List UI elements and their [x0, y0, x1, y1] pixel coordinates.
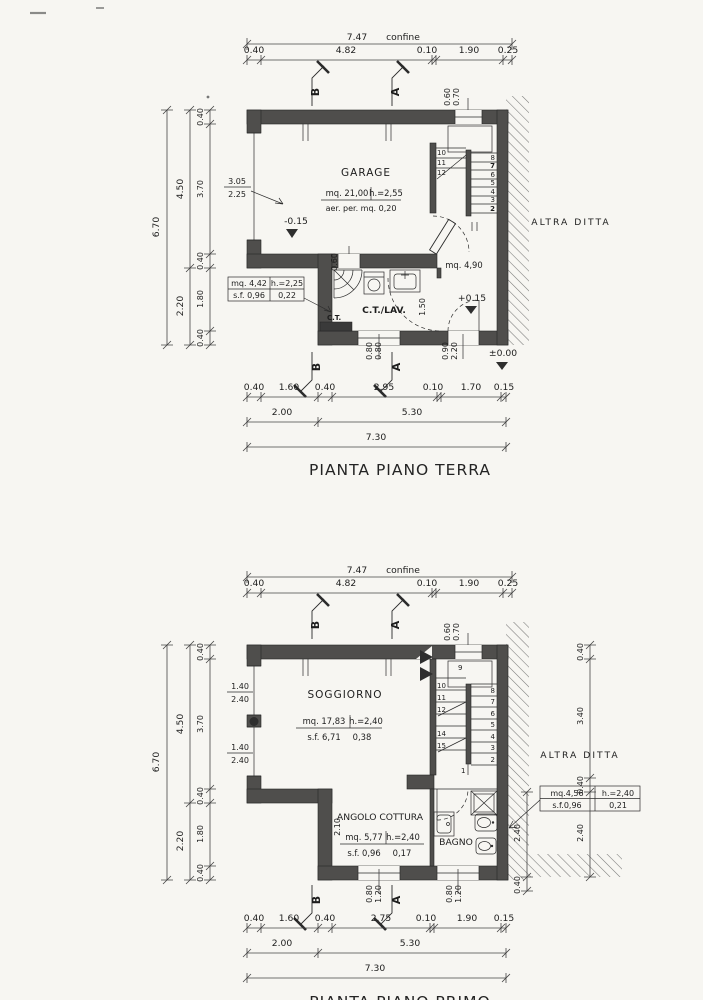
stair-step-number: 15	[437, 742, 446, 750]
stair-step-number: 5	[491, 179, 495, 187]
dim-label: 1.20	[374, 885, 383, 903]
dim-label: 0.60	[330, 253, 339, 271]
stair-step-number: 10	[437, 149, 446, 157]
stair-step-number: 6	[491, 710, 496, 718]
plan1-title: PIANTA PIANO TERRA	[309, 461, 491, 479]
stair-step-number: 4	[491, 188, 496, 196]
dim-label: 0.15	[494, 382, 515, 393]
height-value: h.=2,55	[369, 188, 403, 198]
stair-step-number: 5	[491, 721, 495, 729]
dim-label: 0.10	[423, 382, 444, 393]
dim-label: 0.90	[441, 342, 450, 360]
section-marker-b: B	[309, 88, 322, 96]
plan2-cottura-room: ANGOLO COTTURA mq. 5,77 h.=2,40 s.f. 0,9…	[333, 812, 424, 858]
dim-label: 2.20	[450, 342, 459, 360]
dim-label: 0.25	[498, 45, 519, 56]
stair-step-number: 9	[458, 664, 462, 672]
plan2-title-cutoff: PIANTA PIANO PRIMO	[309, 993, 490, 1000]
plan1-top-window-dims: 0.60 0.70	[443, 88, 468, 110]
dim-label: 3.70	[196, 715, 205, 733]
height-value: h.=2,40	[386, 832, 420, 842]
plan1-staircase: 10 11 12 8 7 6 5 4 3 2	[430, 126, 497, 254]
garage-door-leaf	[430, 219, 456, 254]
scanned-floor-plan-sheet: 7.47 confine 0.40 4.82 0.10 1.90 0.25 6.…	[0, 0, 703, 1000]
dim-label: 0.40	[196, 643, 205, 661]
shower-fixture	[471, 791, 497, 815]
stair-step-number: 7	[491, 698, 495, 706]
stair-step-number: 2	[490, 205, 495, 213]
dim-label: 7.30	[366, 432, 387, 443]
dim-label: 3.70	[196, 180, 205, 198]
dim-label: 2.40	[576, 824, 585, 842]
dim-label: 0.10	[417, 45, 438, 56]
area-value: mq. 4,42	[231, 279, 267, 288]
section-marker-b: B	[309, 621, 322, 629]
dim-label: confine	[386, 32, 420, 43]
sf-value: 0,21	[609, 801, 627, 810]
plan2-left-dimensions: 6.70 4.50 2.20 0.40 3.70 0.40 1.80 0.40	[151, 641, 216, 884]
ctlav-data-table: mq. 4,42 h.=2,25 s.f. 0,96 0,22	[228, 277, 331, 312]
column-dot	[250, 717, 259, 726]
dim-label: 1.50	[418, 298, 427, 316]
dim-label: 0.70	[452, 88, 461, 106]
toilet-fixture	[475, 814, 497, 831]
dim-label: 0.15	[494, 913, 515, 924]
level-label: -0.15	[284, 216, 308, 227]
washing-machine-fixture	[364, 272, 384, 294]
dim-label: 2.00	[272, 938, 293, 949]
neighbor-label: ALTRA DITTA	[540, 750, 619, 761]
dim-label: 6.70	[151, 217, 162, 238]
dim-label: 4.50	[175, 714, 186, 735]
stair-step-number: 14	[437, 730, 446, 738]
dim-label: 0.40	[315, 913, 336, 924]
dim-label: 0.40	[244, 578, 265, 589]
ct-equipment-block	[320, 322, 352, 331]
dim-label: 6.70	[151, 752, 162, 773]
room-label: GARAGE	[341, 167, 391, 179]
plan1-bottom-dimensions: 0.40 1.60 0.40 2.95 0.10 1.70 0.15 2.00 …	[243, 382, 514, 452]
dim-label: 0.40	[244, 45, 265, 56]
dim-label: 1.90	[459, 578, 480, 589]
dim-label: 1.70	[461, 382, 482, 393]
room-label: BAGNO	[439, 837, 473, 848]
dim-label: 2.10	[333, 818, 342, 836]
section-marker-b: B	[310, 363, 323, 371]
neighbor-hatch-area	[506, 96, 529, 345]
opening-dim: 2.25	[228, 190, 246, 199]
sf-value: s.f.0,96	[552, 801, 581, 810]
dim-label: 2.20	[175, 831, 186, 852]
dim-label: 4.50	[175, 179, 186, 200]
dim-label: 1.90	[459, 45, 480, 56]
sink-fixture	[390, 270, 420, 292]
floor-plan-drawing: 7.47 confine 0.40 4.82 0.10 1.90 0.25 6.…	[0, 0, 703, 1000]
plan2-bottom-dimensions: 0.40 1.60 0.40 2.75 0.10 1.90 0.15 2.00 …	[243, 913, 514, 983]
window-dim: 1.40	[231, 743, 249, 752]
dim-label: 0.80	[365, 342, 374, 360]
stair-step-number: 12	[437, 706, 446, 714]
stair-step-number: 11	[437, 159, 446, 167]
plan1-top-dimensions: 7.47 confine 0.40 4.82 0.10 1.90 0.25	[243, 32, 518, 65]
plan2-first-floor: 7.47 confine 0.40 4.82 0.10 1.90 0.25 6.…	[151, 565, 640, 1000]
height-value: h.=2,25	[271, 279, 303, 288]
dim-label: 0.40	[576, 776, 585, 794]
section-marker-b: B	[310, 896, 323, 904]
dim-label: 7.47	[347, 565, 368, 576]
dim-label: 4.82	[336, 45, 356, 56]
dim-label: 0.40	[196, 108, 205, 126]
dim-label: 0.80	[365, 885, 374, 903]
dim-label: 0.80	[445, 885, 454, 903]
dim-label: 7.30	[365, 963, 386, 974]
dim-label: 7.47	[347, 32, 368, 43]
height-value: h.=2,40	[349, 716, 383, 726]
dim-label: 1.90	[457, 913, 478, 924]
room-label: SOGGIORNO	[308, 689, 383, 701]
area-value: mq. 5,77	[345, 832, 382, 842]
plan2-bagno-room: BAGNO mq.4,56 h.=2,40 s.f.0,96 0,21	[434, 786, 640, 854]
dim-label: 4.82	[336, 578, 356, 589]
section-marker-a: A	[390, 362, 403, 371]
level-label: +0.15	[458, 293, 486, 304]
area-value: mq. 21,00	[326, 188, 369, 198]
dim-label: 0.25	[498, 578, 519, 589]
ct-label: C.T.	[327, 314, 341, 322]
room-label: ANGOLO COTTURA	[337, 812, 424, 823]
plan2-top-dimensions: 7.47 confine 0.40 4.82 0.10 1.90 0.25	[243, 565, 518, 598]
plan2-top-window-dims: 0.60 0.70	[443, 623, 468, 645]
stair-step-number: 6	[491, 171, 496, 179]
section-marker-a: A	[389, 620, 402, 629]
dim-label: 0.40	[196, 329, 205, 347]
window-dim: 2.40	[231, 756, 249, 765]
stair-step-number: 4	[491, 733, 496, 741]
neighbor-label: ALTRA DITTA	[531, 217, 610, 228]
area-value: mq. 4,90	[445, 260, 482, 270]
dim-label: 1.20	[454, 885, 463, 903]
stair-step-number: 1	[461, 767, 465, 775]
sf-value: 0,22	[278, 291, 296, 300]
stair-step-number: 7	[490, 162, 495, 170]
window-dim: 2.40	[231, 695, 249, 704]
stair-step-number: 3	[491, 196, 495, 204]
dim-label: 0.70	[452, 623, 461, 641]
dim-label: 0.10	[416, 913, 437, 924]
dim-label: 0.40	[244, 382, 265, 393]
dim-label: 0.40	[196, 787, 205, 805]
aeration-note: aer. per. mq. 0,20	[326, 204, 397, 213]
dim-label: 0.40	[244, 913, 265, 924]
boiler-coil-fixture	[334, 270, 362, 298]
sf-value: s.f. 0,96	[347, 848, 380, 858]
dim-label: 0.80	[374, 342, 383, 360]
dim-label: 2.95	[374, 382, 395, 393]
bidet-fixture	[476, 838, 496, 854]
plan2-staircase: 9 10 11 12 14 15 8 7 6 5 4 3 2 1	[436, 661, 497, 775]
dim-label: 1.80	[196, 825, 205, 843]
dim-label: 0.40	[315, 382, 336, 393]
window-dim: 1.40	[231, 682, 249, 691]
dim-label: 1.60	[279, 382, 300, 393]
dim-label: 0.40	[513, 876, 522, 894]
scan-artifacts	[30, 8, 209, 98]
height-value: h.=2,40	[602, 789, 634, 798]
stair-step-number: 8	[491, 154, 495, 162]
stair-step-number: 11	[437, 694, 446, 702]
sf-value: 0,38	[353, 732, 372, 742]
dim-label: 5.30	[402, 407, 423, 418]
dim-label: 0.40	[196, 864, 205, 882]
stair-step-number: 12	[437, 169, 446, 177]
dim-label: 0.40	[196, 252, 205, 270]
stair-step-number: 8	[491, 687, 495, 695]
dim-label: 2.40	[513, 824, 522, 842]
plan1-garage-room: GARAGE mq. 21,00 h.=2,55 aer. per. mq. 0…	[224, 167, 403, 238]
dim-label: 1.60	[279, 913, 300, 924]
stair-step-number: 3	[491, 744, 495, 752]
neighbor-hatch-area	[506, 854, 622, 877]
dim-label: 5.30	[400, 938, 421, 949]
dim-label: 2.20	[175, 296, 186, 317]
dim-label: 0.60	[443, 623, 452, 641]
stair-step-number: 10	[437, 682, 446, 690]
plan1-ground-floor: 7.47 confine 0.40 4.82 0.10 1.90 0.25 6.…	[151, 32, 611, 479]
section-marker-a: A	[390, 895, 403, 904]
stair-step-number: 2	[491, 756, 495, 764]
dim-label: 2.75	[371, 913, 392, 924]
dim-label: 2.00	[272, 407, 293, 418]
dim-label: 0.40	[576, 643, 585, 661]
dim-label: 1.80	[196, 290, 205, 308]
sf-value: 0,17	[393, 848, 412, 858]
section-marker-a: A	[389, 87, 402, 96]
level-label: ±0.00	[489, 348, 517, 359]
sf-value: s.f. 6,71	[307, 732, 340, 742]
opening-dim: 3.05	[228, 177, 246, 186]
area-value: mq. 17,83	[303, 716, 346, 726]
sf-value: s.f. 0,96	[233, 291, 265, 300]
dim-label: 3.40	[576, 707, 585, 725]
plan1-left-dimensions: 6.70 4.50 2.20 0.40 3.70 0.40 1.80 0.40	[151, 106, 216, 349]
dim-label: 0.60	[443, 88, 452, 106]
dim-label: confine	[386, 565, 420, 576]
dim-label: 0.10	[417, 578, 438, 589]
